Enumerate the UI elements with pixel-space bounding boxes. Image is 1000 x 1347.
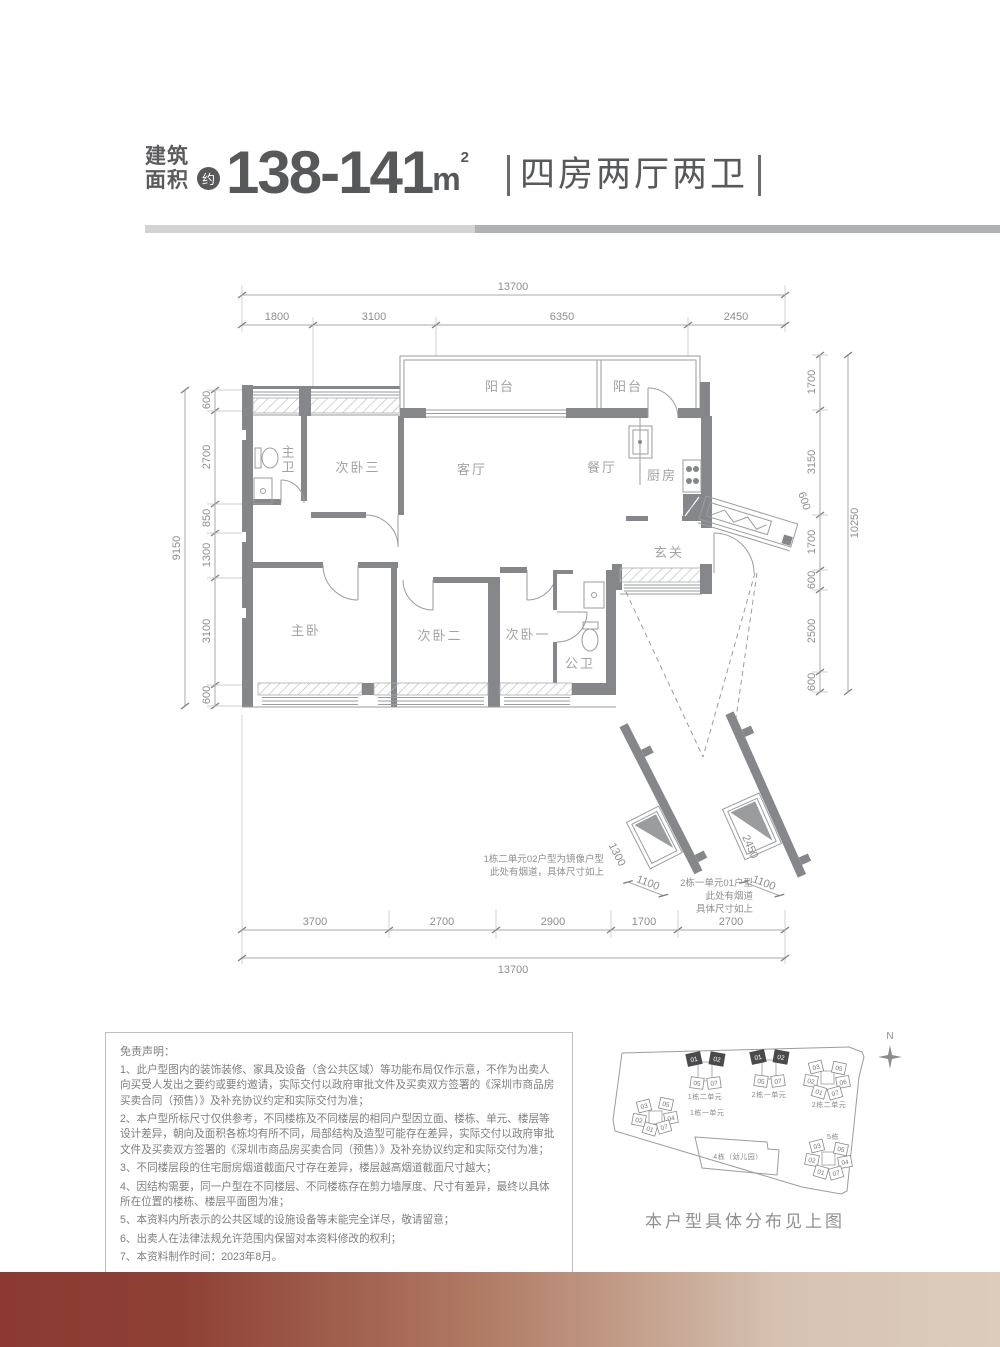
strip-left-dim-depth: 1300 xyxy=(606,841,628,868)
disclaimer-item-3: 3、不同楼层段的住宅厨房烟道截面尺寸存在差异，楼层越高烟道截面尺寸越大； xyxy=(120,1161,558,1176)
dim-right-seg2: 1700 xyxy=(806,530,818,554)
kindergarten-label: 4栋（幼儿园） xyxy=(713,1152,762,1161)
room-master-bedroom: 主卧 xyxy=(291,623,321,638)
dim-bot-seg2: 2900 xyxy=(541,916,565,928)
disclaimer-item-5: 5、本资料内所表示的公共区域的设施设备等未能完全详尽，敬请留意； xyxy=(120,1213,558,1228)
room-balcony-left: 阳台 xyxy=(485,379,515,394)
kindergarten-building: 4栋（幼儿园） xyxy=(695,1137,779,1175)
dim-top-seg3: 2450 xyxy=(724,311,748,323)
dim-bot-seg3: 1700 xyxy=(632,916,656,928)
layout-type-label: 四房两厅两卫 xyxy=(507,155,761,196)
svg-text:07: 07 xyxy=(710,1080,719,1088)
room-dining: 餐厅 xyxy=(587,460,617,475)
room-bedroom2: 次卧二 xyxy=(417,628,462,643)
dim-left-seg4: 3100 xyxy=(201,619,213,643)
cluster-2d2u-label: 2栋二单元 xyxy=(812,1100,846,1109)
area-unit: m2 xyxy=(432,149,469,198)
dim-right-seg1: 3150 xyxy=(806,450,818,474)
room-master-bath: 主卫 xyxy=(280,445,295,475)
area-value: 138-141 xyxy=(226,146,432,200)
dim-bot-seg0: 3700 xyxy=(303,916,327,928)
dim-left-seg0: 600 xyxy=(201,391,213,409)
north-compass-icon: N xyxy=(878,1031,902,1069)
approx-badge: 约 xyxy=(197,167,220,190)
cluster-1d2u-label: 1栋二单元 xyxy=(688,1092,722,1101)
room-labels: 阳台 阳台 主卫 次卧三 客厅 餐厅 厨房 玄关 主卧 次卧二 次卧一 公卫 xyxy=(280,379,685,671)
annotation1-line1: 1栋二单元02户型为镜像户型 xyxy=(484,853,605,865)
dim-right-seg0: 1700 xyxy=(806,370,818,394)
cluster-1d2u: 01 02 05 07 1栋二单元 xyxy=(686,1052,725,1101)
area-unit-sup: 2 xyxy=(461,149,469,166)
disclaimer-title: 免责声明： xyxy=(120,1043,558,1059)
disclaimer-item-1: 1、此户型图内的装饰装修、家具及设备（含公共区域）等功能布局仅作示意，不作为出卖… xyxy=(120,1063,558,1109)
flue-label: 烟道 xyxy=(687,504,697,511)
svg-text:05: 05 xyxy=(693,1080,702,1088)
dim-right-seg4: 2500 xyxy=(806,619,818,643)
dim-right-overall: 10250 xyxy=(849,508,861,539)
floorplan-page: 建筑 面积 约 138-141 m2 四房两厅两卫 13700 1800 xyxy=(0,0,1000,1347)
dim-left-overall: 9150 xyxy=(171,536,183,560)
strip-left-dim-width: 1100 xyxy=(623,869,671,899)
dim-right-seg5: 600 xyxy=(806,673,818,691)
corridor-ramp xyxy=(698,496,798,551)
strip-right-dim-depth: 2450 xyxy=(739,833,760,860)
header-divider-left xyxy=(145,225,475,233)
area-label: 建筑 面积 xyxy=(145,145,189,192)
area-unit-m: m xyxy=(432,161,460,197)
bottom-accent-bar xyxy=(0,1272,1000,1347)
room-living: 客厅 xyxy=(457,462,487,477)
room-kitchen: 厨房 xyxy=(647,468,677,483)
dim-bot-seg1: 2700 xyxy=(430,916,454,928)
dim-bot-overall: 13700 xyxy=(498,964,529,976)
dim-top-seg1: 3100 xyxy=(362,311,386,323)
cluster-2d1u-label: 2栋一单元 xyxy=(752,1090,786,1099)
site-plan: N 01 02 05 07 1栋二单元 01 02 05 07 2栋一单元 03… xyxy=(605,1025,985,1235)
room-foyer: 玄关 xyxy=(654,545,684,560)
cluster-2d1u: 01 02 05 07 2栋一单元 xyxy=(750,1050,789,1099)
dim-left-seg2: 850 xyxy=(201,509,213,527)
cluster-1d1u-label: 1栋一单元 xyxy=(690,1108,724,1117)
cluster-5d: 5栋 03 05 02 04 01 07 xyxy=(805,1132,853,1180)
dim-top-seg2: 6350 xyxy=(550,311,574,323)
floor-plan-drawing: 13700 1800 3100 6350 2450 3700 2700 2900… xyxy=(0,270,1000,980)
svg-text:07: 07 xyxy=(774,1078,783,1086)
header-divider-right xyxy=(475,225,1000,233)
dim-top-overall: 13700 xyxy=(498,281,529,293)
disclaimer-item-7: 7、本资料制作时间：2023年8月。 xyxy=(120,1250,558,1265)
compass-star xyxy=(878,1045,902,1069)
disclaimer-box: 免责声明： 1、此户型图内的装饰装修、家具及设备（含公共区域）等功能布局仅作示意… xyxy=(105,1032,573,1281)
dim-top-seg0: 1800 xyxy=(265,311,289,323)
dim-bot-seg4: 2700 xyxy=(719,916,743,928)
diagonal-strip-left xyxy=(587,719,712,891)
room-bedroom1: 次卧一 xyxy=(505,627,550,642)
disclaimer-item-4: 4、因结构需要，同一户型在不同楼层、不同楼栋存在剪力墙厚度、尺寸有差异，最终以具… xyxy=(120,1180,558,1211)
dim-left-seg5: 600 xyxy=(201,686,213,704)
room-bedroom3: 次卧三 xyxy=(335,460,380,475)
fixtures-layer: 烟道 xyxy=(254,426,701,651)
north-label: N xyxy=(886,1031,893,1042)
dim-right-seg3: 600 xyxy=(806,571,818,589)
annotation1-line2: 此处有烟道，具体尺寸如上 xyxy=(490,866,605,878)
cluster-5d-label: 5栋 xyxy=(827,1132,839,1141)
dim-corridor-600: 600 xyxy=(795,490,812,511)
disclaimer-item-6: 6、出卖人在法律法规允许范围内保留对本资料修改的权利； xyxy=(120,1232,558,1247)
dim-left-seg1: 2700 xyxy=(201,445,213,469)
area-label-line1: 建筑 xyxy=(145,145,189,169)
dim-left-seg3: 1300 xyxy=(201,543,213,567)
disclaimer-item-2: 2、本户型所标尺寸仅供参考，不同楼栋及不同楼层的相同户型因立面、楼栋、单元、楼层… xyxy=(120,1112,558,1158)
cluster-2d2u: 03 05 02 06 01 07 2栋二单元 xyxy=(804,1060,851,1109)
annotation2-line2: 此处有烟道 xyxy=(705,890,753,902)
room-balcony-right: 阳台 xyxy=(613,379,643,394)
annotation2-line1: 2栋一单元01户型 xyxy=(680,877,753,889)
area-label-line2: 面积 xyxy=(145,169,189,193)
cluster-1d1u: 03 05 02 04 01 07 1栋一单元 xyxy=(632,1097,725,1136)
svg-text:05: 05 xyxy=(757,1078,766,1086)
annotation2-line3: 具体尺寸如上 xyxy=(696,903,754,915)
room-public-bath: 公卫 xyxy=(565,656,595,671)
diagonal-strip-right xyxy=(688,707,815,894)
header: 建筑 面积 约 138-141 m2 四房两厅两卫 xyxy=(145,145,761,200)
site-plan-caption: 本户型具体分布见上图 xyxy=(645,1212,845,1231)
